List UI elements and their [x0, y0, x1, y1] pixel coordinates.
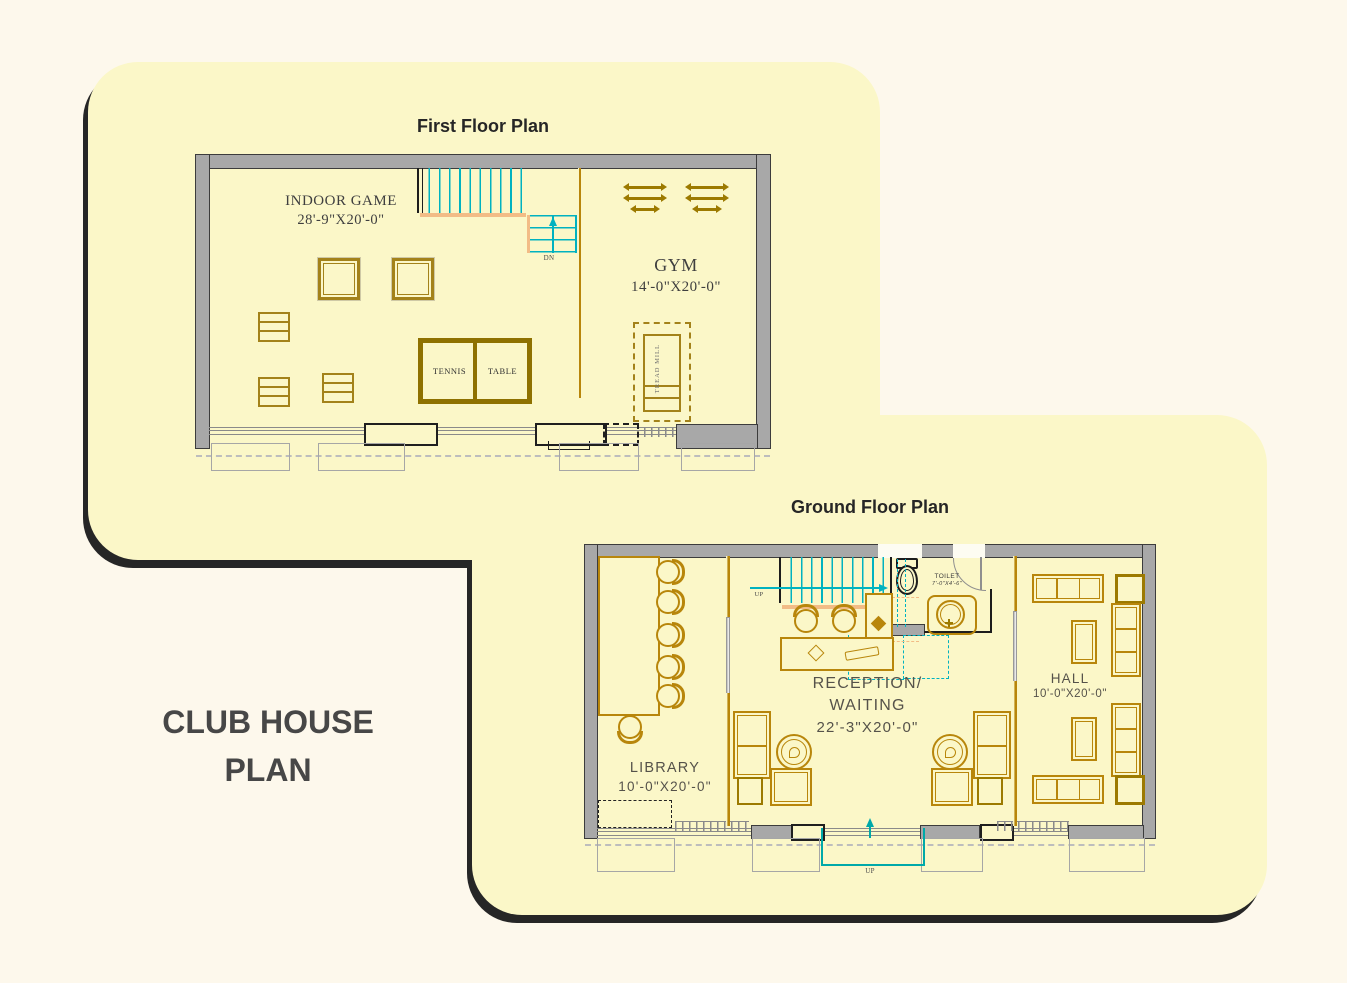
library-partition-upper	[726, 556, 730, 617]
gf-library-window-dashed	[598, 800, 672, 828]
hall-dim: 10'-0"X20'-0"	[1015, 688, 1125, 700]
tennis-table-label-1: TENNIS	[433, 366, 466, 376]
side-table-icon	[737, 777, 763, 805]
dumbbell-icon	[697, 208, 717, 211]
treadmill-label: TREAD MILL	[654, 344, 661, 393]
treadmill-icon: TREAD MILL	[643, 334, 681, 412]
gf-porch-sill-4	[1069, 838, 1145, 872]
gym-dim: 14'-0"X20'-0"	[611, 279, 741, 296]
gf-porch-sill-2	[752, 838, 820, 872]
hall-chair-icon	[1071, 717, 1097, 761]
library-chair-icon	[656, 684, 680, 708]
ff-wall-left	[196, 155, 209, 448]
library-chair-icon	[656, 655, 680, 679]
gym-name: GYM	[611, 255, 741, 276]
sofa-icon	[733, 711, 771, 779]
reception-name-2: WAITING	[775, 697, 960, 715]
hall-sofa-icon	[1111, 703, 1141, 777]
toilet-name: TOILET	[915, 573, 979, 580]
entry-up-label: UP	[855, 867, 885, 875]
coffee-table-icon	[776, 734, 812, 770]
library-label: LIBRARY 10'-0"X20'-0"	[595, 760, 735, 794]
gf-stair-arrow-line	[750, 587, 880, 589]
armchair-icon	[931, 768, 973, 806]
basin-tap-icon	[945, 619, 953, 627]
hall-sofa-icon	[1111, 603, 1141, 677]
ff-porch-sill-4	[681, 443, 755, 471]
gym-label: GYM 14'-0"X20'-0"	[611, 255, 741, 296]
tennis-table-label-2: TABLE	[488, 366, 517, 376]
entry-steps-icon	[821, 828, 925, 866]
side-table-icon	[977, 777, 1003, 805]
ff-stair-lower-peach	[527, 215, 530, 253]
entry-arrow-stem	[869, 826, 871, 838]
gf-window-comb-right	[997, 821, 1069, 831]
ff-stool-icon-2	[258, 377, 290, 407]
library-chair-icon	[656, 560, 680, 584]
sofa-icon	[973, 711, 1011, 779]
library-partition-window	[726, 617, 730, 695]
ff-stair-edge-2	[422, 168, 423, 213]
reception-name-1: RECEPTION/	[775, 675, 960, 693]
ff-wall-top	[196, 155, 770, 168]
dumbbell-icon	[690, 197, 724, 200]
gf-stairs-up-label: UP	[747, 591, 771, 598]
dumbbell-icon	[628, 186, 662, 189]
indoor-game-name: INDOOR GAME	[261, 193, 421, 210]
indoor-game-dim: 28'-9"X20'-0"	[261, 212, 421, 229]
ff-stair-arrow-stem	[552, 225, 554, 235]
reception-label: RECEPTION/ WAITING 22'-3"X20'-0"	[775, 675, 960, 736]
hall-label: HALL 10'-0"X20'-0"	[1015, 671, 1125, 700]
ff-stair-lower-right	[575, 215, 577, 253]
gf-top-wall-gap	[878, 544, 922, 558]
first-floor-plan: DN TENNIS TABLE TREAD MILL INDOOR GAME	[196, 155, 770, 448]
gf-wall-bottom-3	[1069, 826, 1143, 838]
dumbbell-icon	[635, 208, 655, 211]
ground-floor-title: Ground Floor Plan	[720, 497, 1020, 518]
tennis-net-line	[473, 340, 477, 402]
gf-toilet-door-opening	[953, 544, 985, 558]
ff-game-table-icon-1	[318, 258, 360, 300]
hall-sofa-icon	[1032, 775, 1104, 804]
desk-chair-icon	[794, 609, 818, 633]
ff-stool-icon-1	[258, 312, 290, 342]
ff-tennis-table-icon: TENNIS TABLE	[418, 338, 532, 404]
toilet-label: TOILET 7'-0"X4'-6"	[915, 573, 979, 587]
ground-floor-plan: UP UP	[585, 545, 1155, 838]
reception-dim: 22'-3"X20'-0"	[775, 719, 960, 736]
gf-wall-bottom-2	[921, 826, 979, 838]
armchair-icon	[770, 768, 812, 806]
ff-porch-sill-3	[559, 443, 639, 471]
ff-porch-sill-2	[318, 443, 405, 471]
gf-porch-sill-1	[597, 838, 675, 872]
gf-wall-top	[585, 545, 1155, 557]
indoor-game-label: INDOOR GAME 28'-9"X20'-0"	[261, 193, 421, 229]
hall-partition-lower	[1013, 681, 1017, 826]
library-chair-icon	[656, 623, 680, 647]
library-table-icon	[598, 556, 660, 716]
gf-stair-edge	[779, 557, 781, 603]
ff-game-table-icon-2	[392, 258, 434, 300]
ff-stairs-dn-label: DN	[534, 254, 564, 262]
gf-window-comb-left	[675, 821, 749, 831]
hall-name: HALL	[1015, 671, 1125, 686]
library-chair-icon	[618, 715, 642, 739]
dumbbell-icon	[628, 197, 662, 200]
drawing-title-line2: PLAN	[128, 746, 408, 794]
ff-porch-sill-1	[211, 443, 290, 471]
hall-stool-icon	[1115, 775, 1145, 805]
library-chair-icon	[656, 590, 680, 614]
gf-porch-sill-3	[921, 838, 983, 872]
hall-stool-icon	[1115, 574, 1145, 604]
ff-stair-treads-icon	[420, 168, 526, 213]
first-floor-title: First Floor Plan	[333, 116, 633, 137]
library-name: LIBRARY	[595, 760, 735, 776]
ff-stool-icon-3	[322, 373, 354, 403]
hall-partition-upper	[1013, 556, 1017, 611]
ff-window-comb	[644, 427, 677, 437]
toilet-wall-right	[990, 589, 992, 633]
hall-sofa-icon	[1032, 574, 1104, 603]
drawing-title-line1: CLUB HOUSE	[128, 698, 408, 746]
ff-partition-wall	[578, 168, 581, 398]
hall-chair-icon	[1071, 620, 1097, 664]
toilet-dim: 7'-0"X4'-6"	[915, 581, 979, 587]
gf-stair-arrow-icon	[879, 584, 888, 592]
drawing-title: CLUB HOUSE PLAN	[128, 698, 408, 794]
library-dim: 10'-0"X20'-0"	[595, 779, 735, 794]
coffee-table-icon	[932, 734, 968, 770]
ff-wall-right	[757, 155, 770, 448]
dumbbell-icon	[690, 186, 724, 189]
gf-wall-left	[585, 545, 597, 838]
desk-chair-icon	[832, 609, 856, 633]
clubhouse-plan-canvas: CLUB HOUSE PLAN First Floor Plan DN	[0, 0, 1347, 983]
ff-stair-landing-strip	[420, 213, 526, 217]
